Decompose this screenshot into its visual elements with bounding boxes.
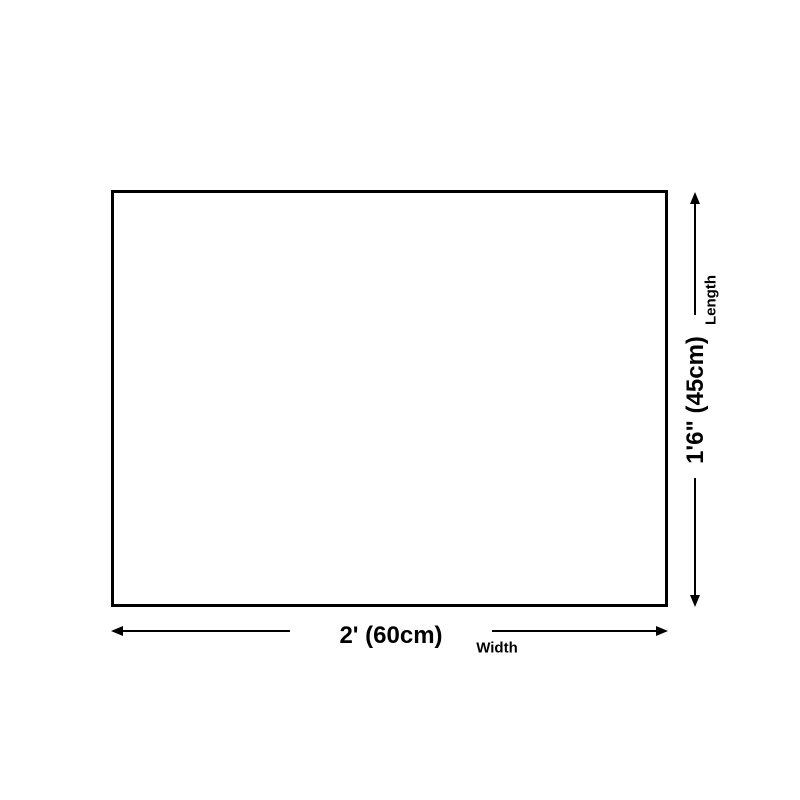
length-dimension-value: 1'6" (45cm): [684, 336, 708, 464]
dimension-diagram: 2' (60cm) Width 1'6" (45cm) Length: [0, 0, 800, 800]
width-dimension-value: 2' (60cm): [290, 624, 492, 648]
width-arrow-right-icon: [656, 626, 668, 636]
width-arrow-line-left: [122, 630, 290, 632]
width-arrow-line-right: [492, 630, 657, 632]
width-axis-label: Width: [476, 641, 518, 656]
length-arrow-line-bottom: [694, 478, 696, 595]
length-axis-label: Length: [704, 275, 719, 325]
product-outline-rectangle: [111, 190, 668, 607]
length-arrow-line-top: [694, 203, 696, 315]
length-arrow-down-icon: [690, 595, 700, 607]
